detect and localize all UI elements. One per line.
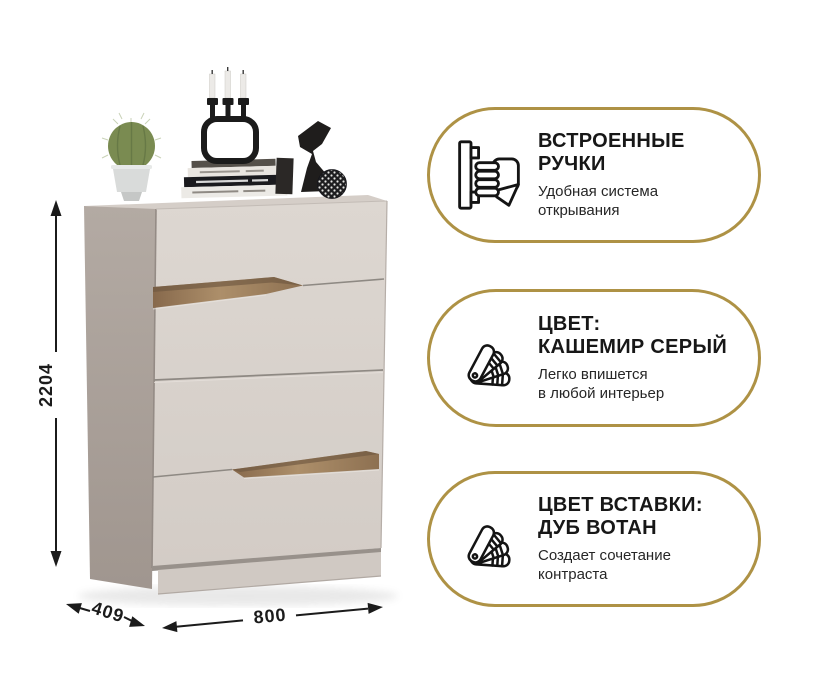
badge-title-line: КАШЕМИР СЕРЫЙ: [538, 336, 727, 359]
badge-title-line: ВСТРОЕННЫЕ: [538, 130, 685, 153]
color-swatch-fan-icon: [452, 327, 526, 389]
chest-of-drawers: [84, 195, 387, 594]
feature-badge-built-in-handles: ВСТРОЕННЫЕ РУЧКИ Удобная система открыва…: [427, 107, 761, 243]
color-swatch-fan-icon: [452, 508, 526, 570]
badge-title-line: РУЧКИ: [538, 153, 685, 176]
dotted-sphere-decor: [318, 170, 347, 199]
floor-shadow: [78, 586, 398, 606]
built-in-handle-icon: [452, 138, 526, 212]
cabinet-front: [152, 201, 387, 568]
badge-text: ВСТРОЕННЫЕ РУЧКИ Удобная система открыва…: [538, 130, 699, 220]
badge-text: ЦВЕТ: КАШЕМИР СЕРЫЙ Легко впишется в люб…: [538, 313, 741, 403]
cactus-decor: [102, 113, 161, 201]
product-infographic: 2204 409 800: [0, 0, 816, 700]
badge-subtitle-line: открывания: [538, 201, 685, 220]
badge-subtitle-line: Удобная система: [538, 182, 685, 201]
height-dimension-label: 2204: [36, 363, 56, 407]
badge-title-line: ДУБ ВОТАН: [538, 517, 703, 540]
width-dimension-label: 800: [253, 604, 288, 627]
width-dimension: 800: [162, 603, 383, 632]
feature-badge-insert-color-oak: ЦВЕТ ВСТАВКИ: ДУБ ВОТАН Создает сочетани…: [427, 471, 761, 607]
badge-title-line: ЦВЕТ:: [538, 313, 727, 336]
badge-subtitle-line: контраста: [538, 565, 703, 584]
cabinet-side: [84, 206, 156, 589]
feature-badge-color-cashmere: ЦВЕТ: КАШЕМИР СЕРЫЙ Легко впишется в люб…: [427, 289, 761, 427]
badge-subtitle-line: в любой интерьер: [538, 384, 727, 403]
badge-subtitle-line: Легко впишется: [538, 365, 727, 384]
height-dimension: 2204: [36, 200, 62, 567]
badge-text: ЦВЕТ ВСТАВКИ: ДУБ ВОТАН Создает сочетани…: [538, 494, 717, 584]
books-decor: [180, 159, 287, 199]
badge-subtitle-line: Создает сочетание: [538, 546, 703, 565]
badge-title-line: ЦВЕТ ВСТАВКИ:: [538, 494, 703, 517]
candelabra-decor: [204, 67, 256, 161]
